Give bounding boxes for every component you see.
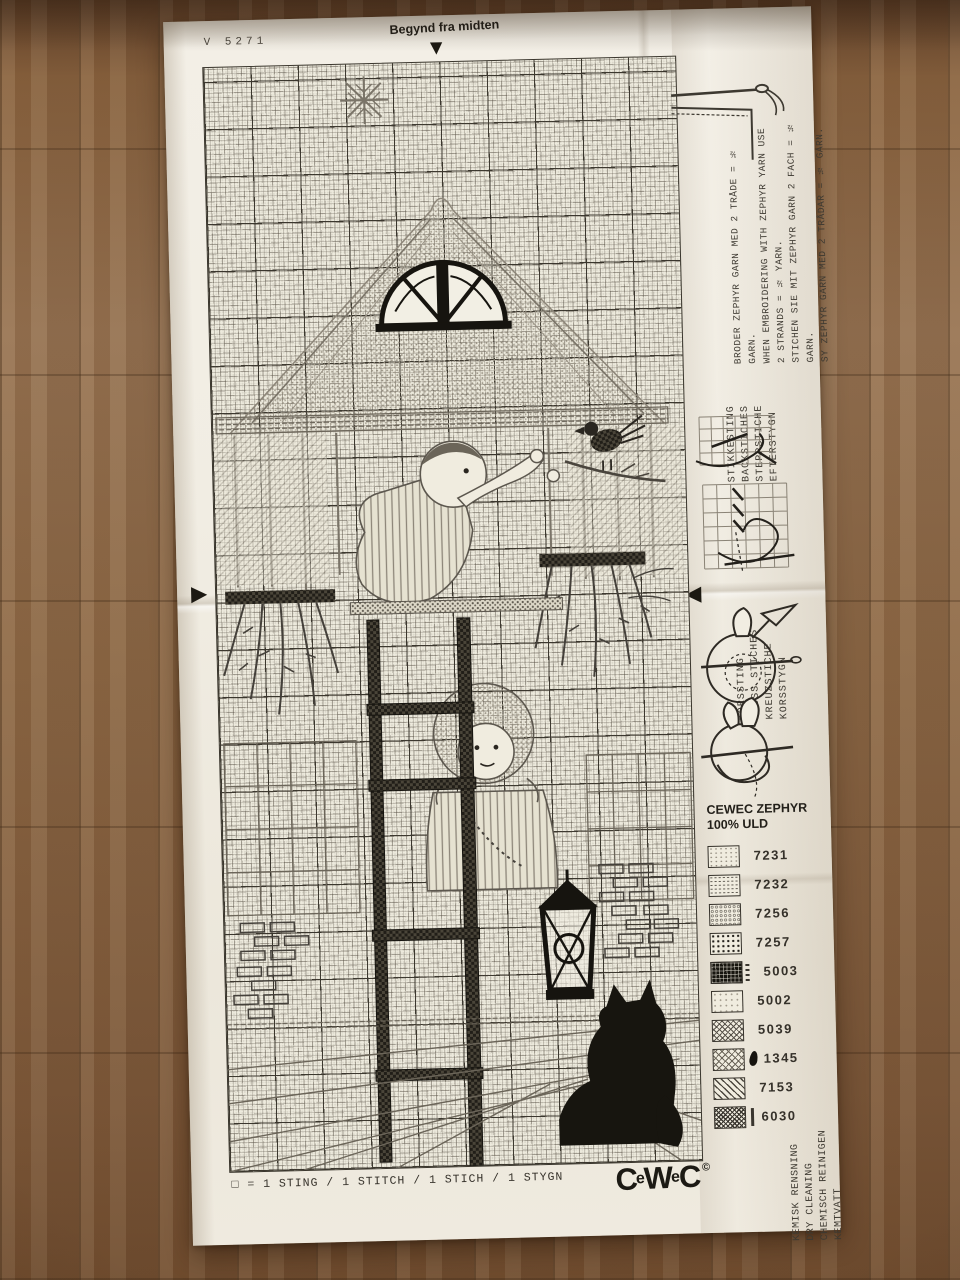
stitch-chart-grid — [202, 56, 703, 1173]
center-marker-arrow-left: ▶ — [191, 583, 208, 604]
legend-code: 7231 — [753, 847, 788, 863]
backstitch-tick-marks — [745, 963, 749, 981]
leaf-mark — [749, 1050, 759, 1066]
backstitch-bar-mark — [751, 1108, 754, 1126]
cewec-brand-logo: CeWeC© — [615, 1158, 711, 1198]
legend-code: 5003 — [763, 963, 798, 979]
legend-row: 7232 — [708, 868, 831, 900]
legend-row: 5039 — [712, 1013, 835, 1045]
swatch-5002 — [711, 990, 744, 1013]
stitch-key: □ = 1 STING / 1 STITCH / 1 STICH / 1 STY… — [231, 1171, 563, 1192]
lattice-window-right — [586, 752, 694, 900]
plant-left — [222, 589, 339, 716]
legend-row: 5003 — [710, 955, 833, 987]
swatch-7232 — [708, 874, 741, 897]
cross-stitch-diagrams — [692, 602, 815, 809]
legend-code: 5039 — [758, 1021, 793, 1037]
legend-row: 1345 — [712, 1042, 835, 1074]
yarn-instructions: BRODER ZEPHYR GARN MED 2 TRÅDE = ½ GARN.… — [726, 110, 834, 364]
ladder — [365, 618, 485, 1168]
pattern-number: V 5271 — [204, 36, 268, 50]
chart-motif-illustration — [203, 57, 702, 1172]
swatch-1345 — [712, 1048, 745, 1071]
legend-code: 1345 — [763, 1050, 798, 1066]
brickwork-left — [232, 922, 310, 1019]
cross-stitch-pattern-sheet: V 5271 Begynd fra midten ▼ ▶ ◀ ▲ — [163, 6, 841, 1245]
swatch-7231 — [707, 845, 740, 868]
legend-row: 7256 — [709, 897, 832, 929]
center-marker-arrow-top: ▼ — [426, 37, 447, 59]
logo-letter: C — [615, 1161, 637, 1197]
logo-letter: W — [643, 1160, 672, 1196]
swatch-7153 — [713, 1077, 746, 1100]
legend-row: 7231 — [707, 839, 830, 871]
legend-code: 7232 — [754, 876, 789, 892]
swatch-7256 — [709, 903, 742, 926]
swatch-7257 — [710, 932, 743, 955]
legend-row: 5002 — [711, 984, 834, 1016]
copyright-mark: © — [702, 1161, 711, 1173]
backstitch-diagrams — [691, 411, 805, 584]
wood-parquet-floor: V 5271 Begynd fra midten ▼ ▶ ◀ ▲ — [0, 0, 960, 1280]
care-instructions: KEMISK RENSNING DRY CLEANING CHEMISCH RE… — [787, 1076, 847, 1241]
legend-code: 7256 — [755, 905, 790, 921]
logo-letter: C — [678, 1159, 700, 1195]
legend-code: 5002 — [757, 992, 792, 1008]
snowflake-motif — [340, 76, 389, 125]
swatch-5039 — [712, 1019, 745, 1042]
cat-silhouette — [556, 979, 683, 1150]
legend-code: 7257 — [756, 934, 791, 950]
lattice-window-left — [224, 741, 360, 916]
swatch-6030 — [714, 1106, 747, 1129]
swatch-5003 — [710, 961, 743, 984]
legend-title: CEWEC ZEPHYR 100% ULD — [706, 800, 829, 833]
legend-row: 7257 — [709, 926, 832, 958]
girl-figure — [353, 439, 562, 605]
brickwork-right — [599, 863, 679, 958]
